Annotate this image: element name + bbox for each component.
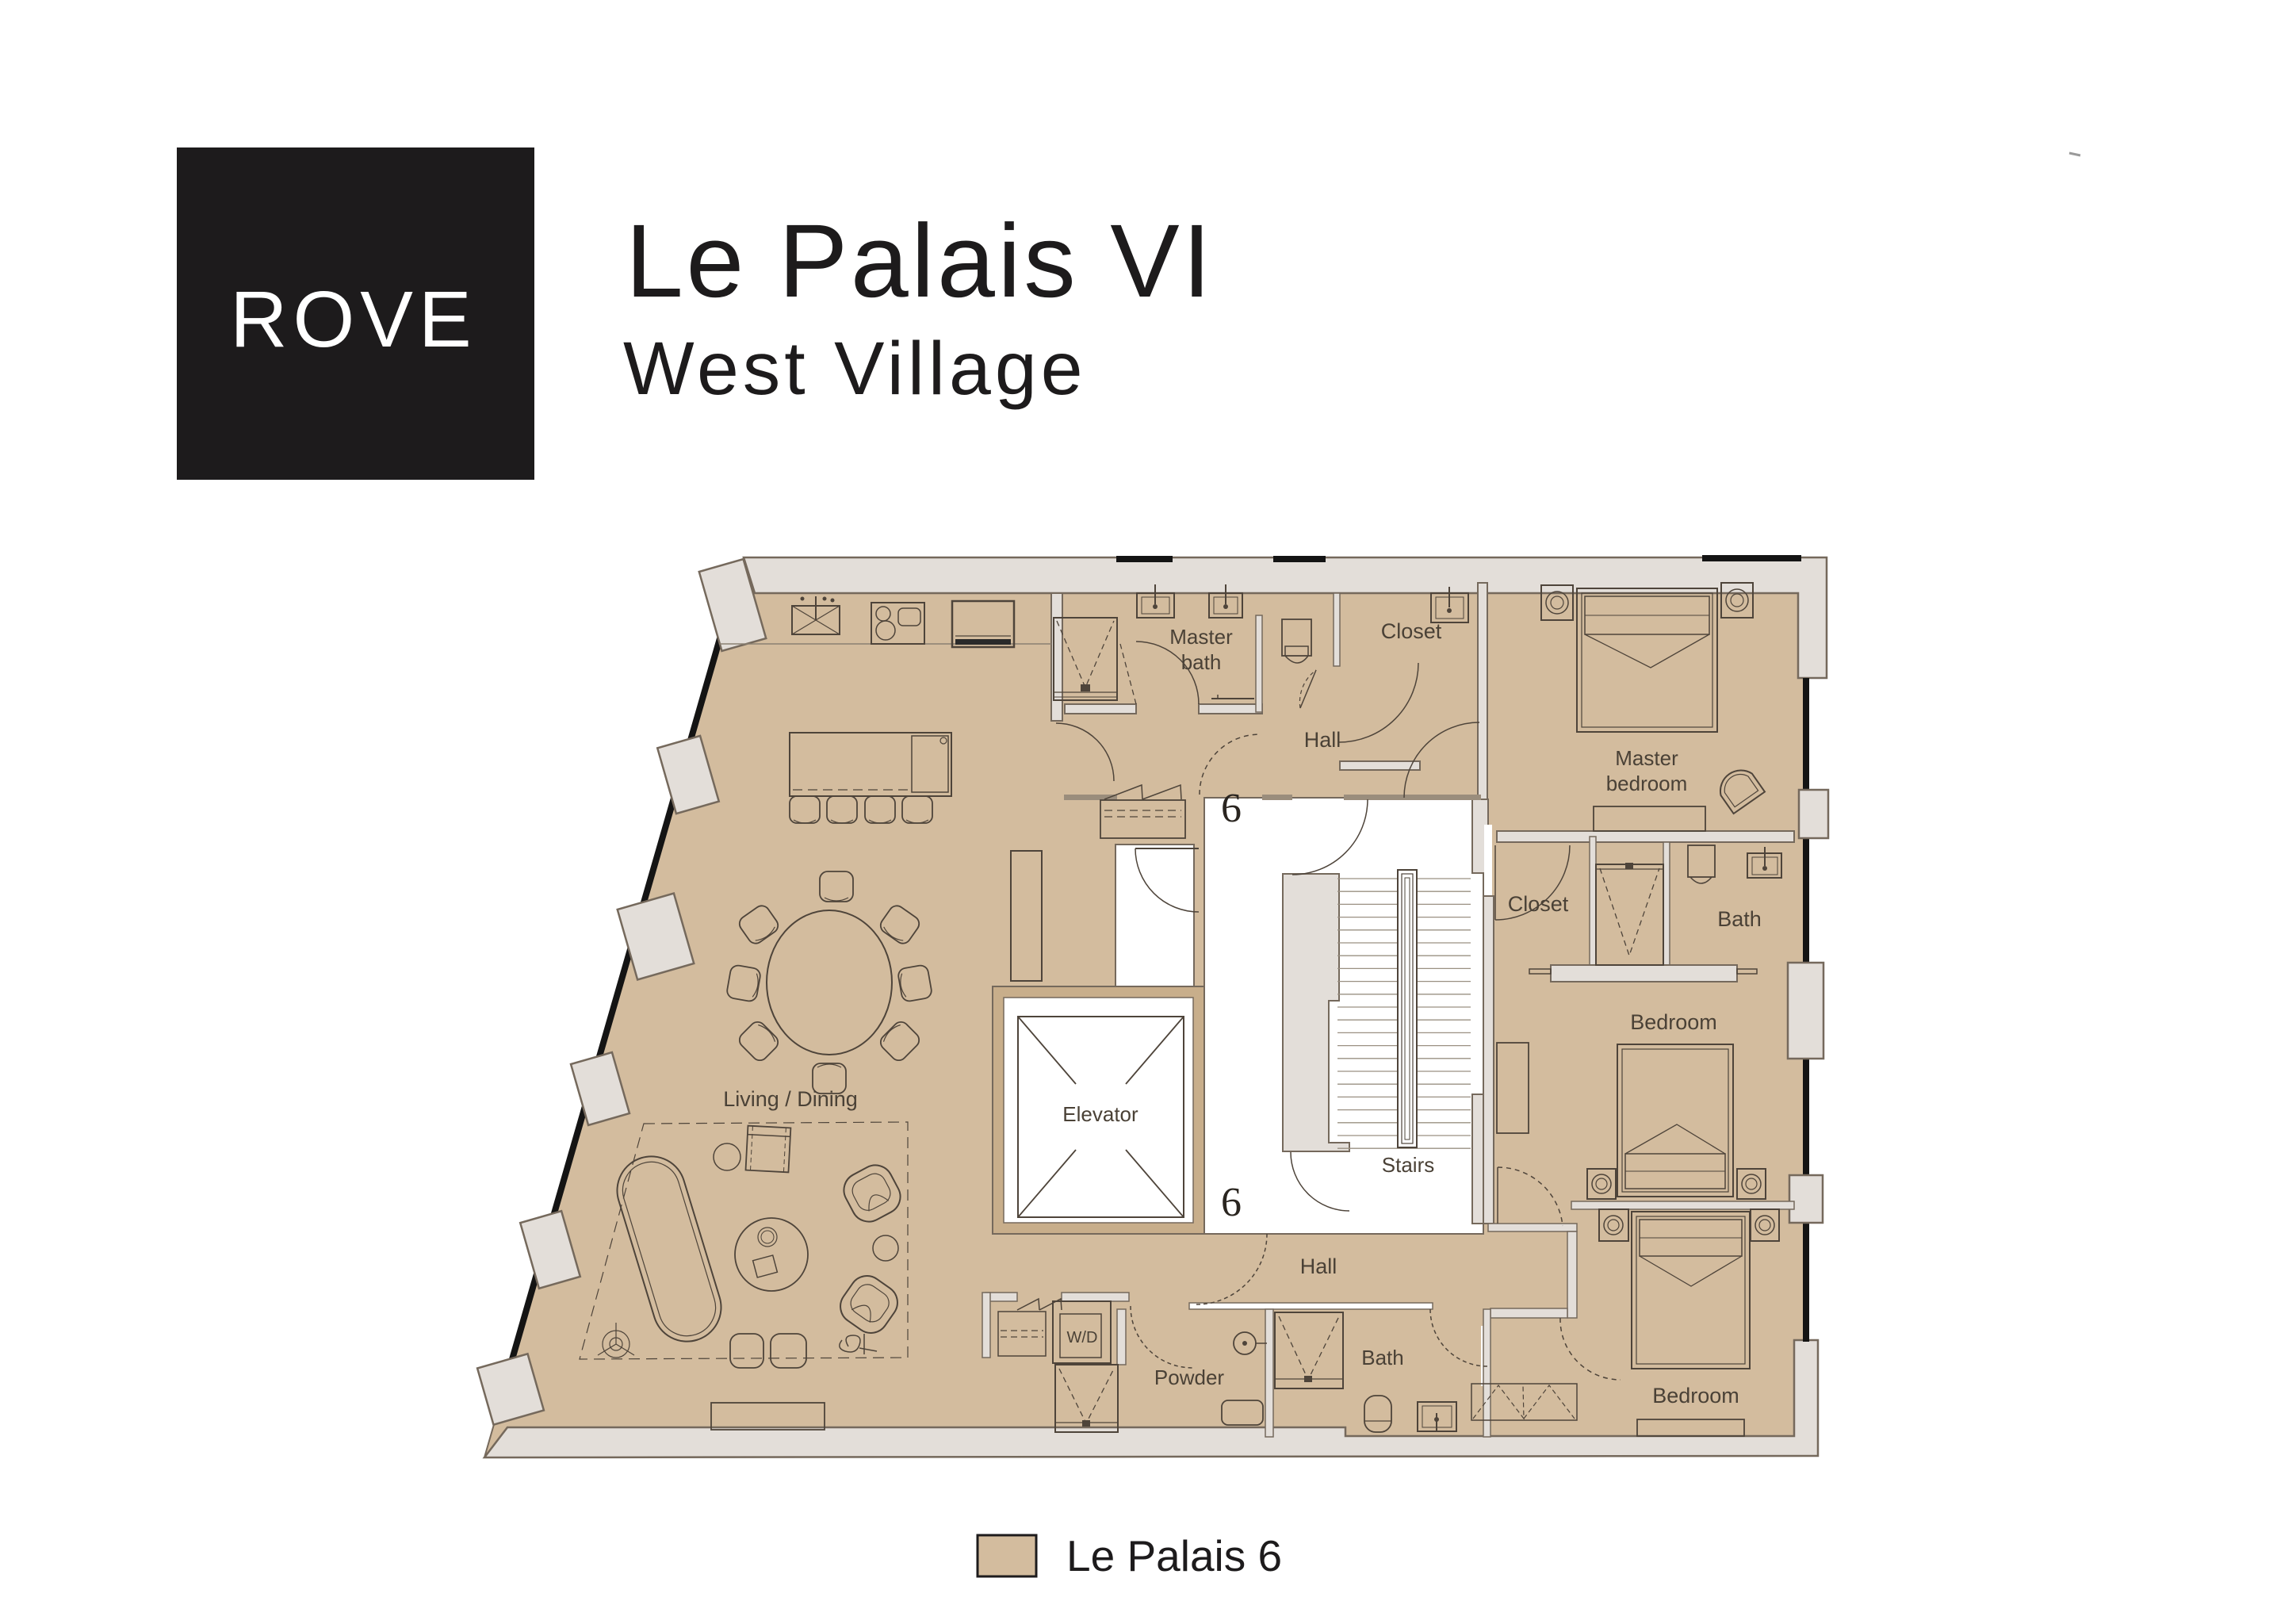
- svg-text:6: 6: [1221, 786, 1242, 831]
- svg-text:Bath: Bath: [1717, 907, 1762, 931]
- svg-text:bath: bath: [1181, 650, 1222, 674]
- svg-text:Master: Master: [1615, 746, 1678, 770]
- svg-text:Hall: Hall: [1300, 1254, 1337, 1278]
- svg-text:Closet: Closet: [1508, 892, 1569, 916]
- svg-text:6: 6: [1221, 1180, 1242, 1225]
- svg-text:Hall: Hall: [1304, 728, 1341, 752]
- svg-text:ROVE: ROVE: [230, 275, 476, 364]
- svg-text:Stairs: Stairs: [1382, 1153, 1434, 1177]
- svg-text:Powder: Powder: [1154, 1365, 1224, 1389]
- svg-text:Bedroom: Bedroom: [1652, 1384, 1739, 1408]
- svg-text:Living / Dining: Living / Dining: [723, 1087, 858, 1111]
- svg-text:bedroom: bedroom: [1606, 772, 1688, 795]
- svg-text:Elevator: Elevator: [1062, 1102, 1138, 1126]
- svg-text:Bath: Bath: [1361, 1346, 1404, 1369]
- svg-text:Closet: Closet: [1381, 619, 1442, 643]
- svg-text:Le Palais VI: Le Palais VI: [626, 202, 1214, 319]
- svg-text:Bedroom: Bedroom: [1630, 1010, 1717, 1034]
- svg-text:West Village: West Village: [623, 327, 1087, 411]
- svg-text:Master: Master: [1169, 625, 1233, 649]
- svg-text:W/D: W/D: [1067, 1329, 1098, 1346]
- svg-text:Le Palais 6: Le Palais 6: [1066, 1531, 1282, 1580]
